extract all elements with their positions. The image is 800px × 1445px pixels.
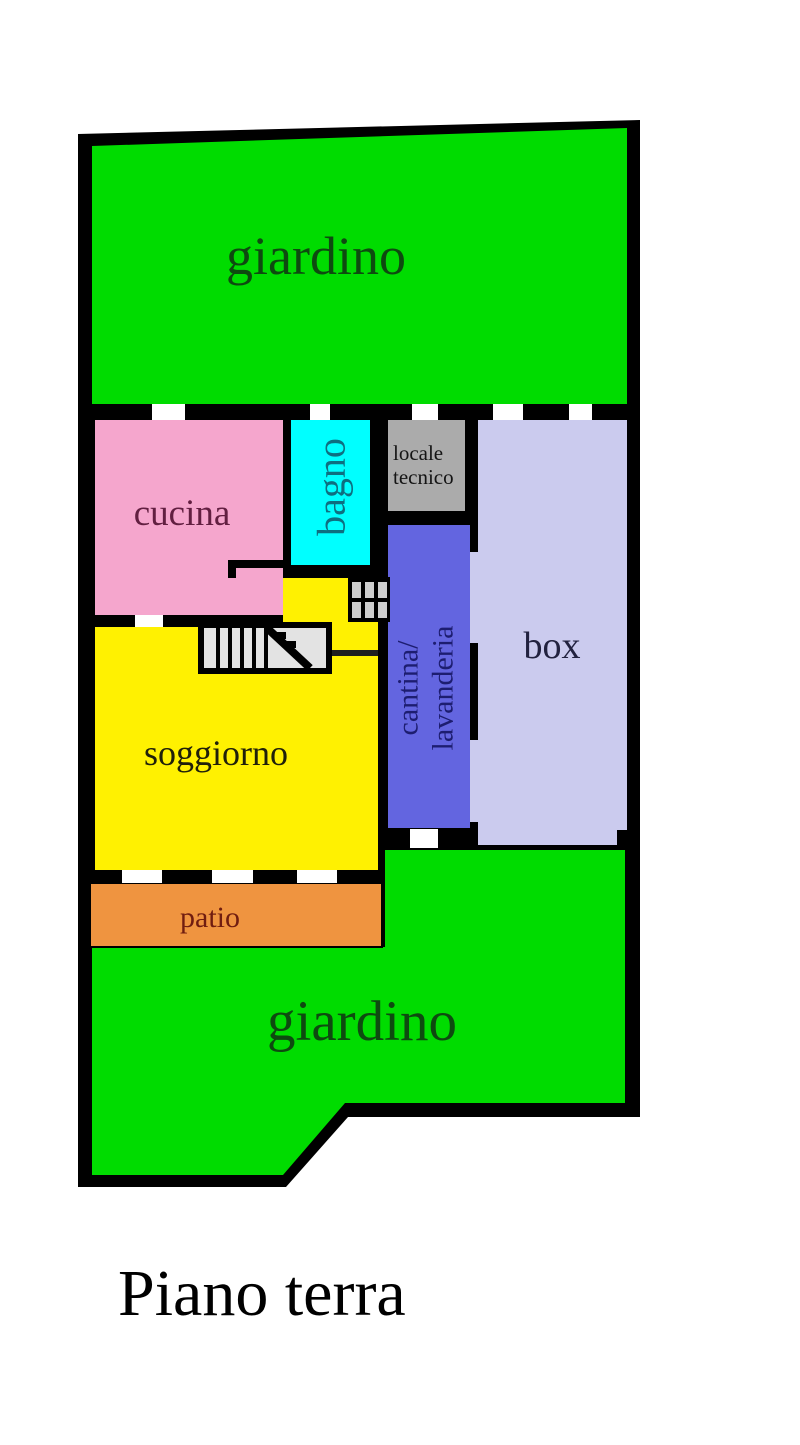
stair-break-step (276, 632, 286, 639)
stair-handrail (332, 650, 378, 656)
label-cantina-line2: lavanderia (427, 626, 460, 751)
label-locale-tecnico-line2: tecnico (393, 465, 454, 489)
label-patio: patio (180, 901, 240, 934)
opening-garden-box-2 (569, 404, 592, 420)
opening-soggiorno-patio-1 (122, 870, 162, 883)
hatch-cell (365, 602, 374, 618)
floor-plan-page: giardino cucina bagno locale tecnico box… (0, 0, 800, 1445)
label-bagno: bagno (309, 438, 354, 536)
label-giardino-top: giardino (226, 226, 406, 286)
opening-soggiorno-patio-3 (297, 870, 337, 883)
stair-tread-line (240, 628, 244, 668)
staircase (198, 622, 332, 674)
opening-garden-locale (412, 404, 438, 420)
opening-garden-cucina (152, 404, 185, 420)
opening-soggiorno-patio-2 (212, 870, 253, 883)
opening-garden-bagno (310, 404, 330, 420)
opening-garden-box-1 (493, 404, 523, 420)
opening-cantina-garden (410, 829, 438, 848)
opening-cucina-soggiorno (135, 615, 163, 627)
stair-tread-line (252, 628, 256, 668)
label-box: box (524, 625, 581, 667)
hatch-cell (352, 602, 361, 618)
plan-title: Piano terra (118, 1257, 406, 1330)
stair-break-step (286, 641, 296, 648)
label-giardino-bottom: giardino (267, 990, 457, 1053)
label-cantina-line1: cantina/ (392, 640, 425, 736)
floor-plan-canvas: giardino cucina bagno locale tecnico box… (0, 0, 800, 1445)
cucina-partition-stub (228, 560, 236, 578)
stair-tread-line (264, 628, 268, 668)
stair-tread-line (228, 628, 232, 668)
box-corner-wall (617, 830, 640, 850)
label-cucina: cucina (134, 493, 231, 534)
hatch-cell (352, 582, 361, 598)
hatch-cell (365, 582, 374, 598)
cucina-partition-wall (228, 560, 287, 568)
label-soggiorno: soggiorno (144, 733, 288, 773)
hatch-cell (378, 582, 387, 598)
label-locale-tecnico-line1: locale (393, 441, 443, 465)
hatch-grid (348, 577, 390, 622)
stair-tread-line (216, 628, 220, 668)
hatch-cell (378, 602, 387, 618)
